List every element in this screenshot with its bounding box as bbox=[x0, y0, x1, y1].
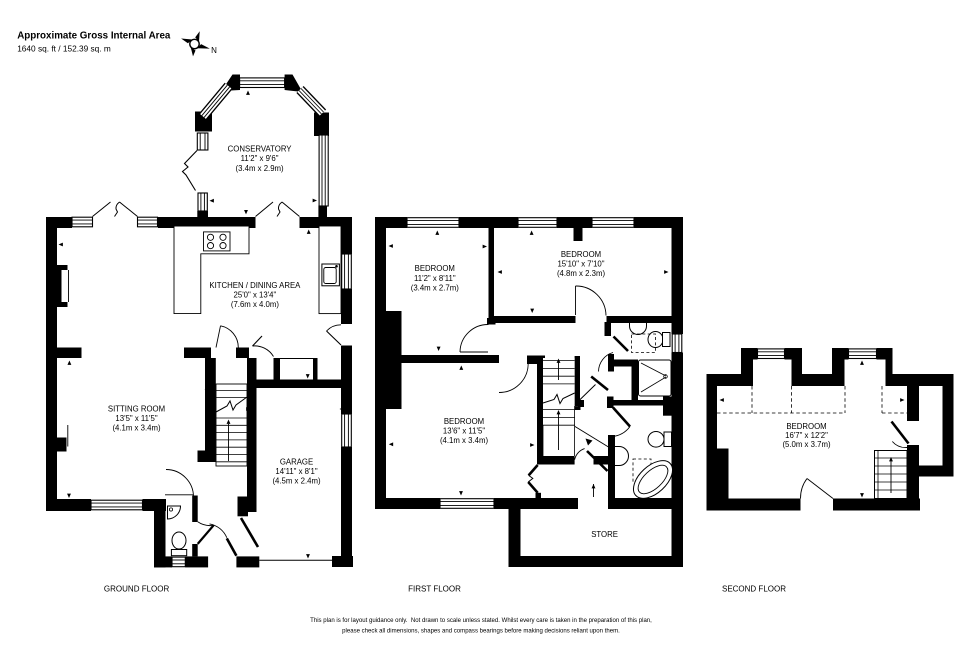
svg-text:This plan is for layout guidan: This plan is for layout guidance only. N… bbox=[310, 618, 652, 624]
svg-text:1640 sq. ft / 152.39 sq. m: 1640 sq. ft / 152.39 sq. m bbox=[17, 44, 111, 54]
svg-text:Approximate Gross Internal Are: Approximate Gross Internal Area bbox=[17, 31, 171, 42]
svg-text:13'5" x 11'5": 13'5" x 11'5" bbox=[115, 414, 157, 423]
svg-text:(4.8m x 2.3m): (4.8m x 2.3m) bbox=[557, 269, 605, 278]
svg-text:11'2" x 8'11": 11'2" x 8'11" bbox=[414, 274, 456, 283]
svg-text:14'11" x 8'1": 14'11" x 8'1" bbox=[275, 467, 317, 476]
svg-text:BEDROOM: BEDROOM bbox=[444, 417, 484, 426]
svg-text:(4.1m x 3.4m): (4.1m x 3.4m) bbox=[440, 436, 488, 445]
svg-text:please check all dimensions, s: please check all dimensions, shapes and … bbox=[342, 629, 620, 635]
svg-text:16'7" x 12'2": 16'7" x 12'2" bbox=[785, 431, 828, 440]
svg-text:(3.4m x 2.7m): (3.4m x 2.7m) bbox=[411, 283, 459, 292]
svg-text:CONSERVATORY: CONSERVATORY bbox=[228, 145, 293, 154]
svg-text:25'0" x 13'4": 25'0" x 13'4" bbox=[234, 291, 277, 300]
svg-text:STORE: STORE bbox=[591, 530, 618, 539]
svg-text:BEDROOM: BEDROOM bbox=[561, 250, 601, 259]
svg-text:GARAGE: GARAGE bbox=[280, 457, 313, 466]
svg-text:FIRST FLOOR: FIRST FLOOR bbox=[408, 585, 461, 594]
svg-text:N: N bbox=[211, 46, 217, 55]
svg-text:SECOND FLOOR: SECOND FLOOR bbox=[722, 585, 786, 594]
svg-text:(5.0m x 3.7m): (5.0m x 3.7m) bbox=[782, 440, 830, 449]
svg-text:15'10" x 7'10": 15'10" x 7'10" bbox=[557, 260, 604, 269]
svg-text:SITTING ROOM: SITTING ROOM bbox=[108, 405, 165, 414]
svg-text:11'2" x 9'6": 11'2" x 9'6" bbox=[241, 154, 279, 163]
svg-text:BEDROOM: BEDROOM bbox=[415, 264, 455, 273]
svg-text:BEDROOM: BEDROOM bbox=[786, 422, 826, 431]
svg-text:13'6" x 11'5": 13'6" x 11'5" bbox=[443, 427, 485, 436]
svg-text:(7.6m x 4.0m): (7.6m x 4.0m) bbox=[231, 300, 279, 309]
svg-text:KITCHEN / DINING AREA: KITCHEN / DINING AREA bbox=[209, 281, 301, 290]
svg-text:(3.4m x 2.9m): (3.4m x 2.9m) bbox=[236, 164, 284, 173]
svg-text:GROUND FLOOR: GROUND FLOOR bbox=[104, 585, 170, 594]
svg-text:(4.1m x 3.4m): (4.1m x 3.4m) bbox=[112, 424, 160, 433]
svg-text:(4.5m x 2.4m): (4.5m x 2.4m) bbox=[272, 477, 320, 486]
